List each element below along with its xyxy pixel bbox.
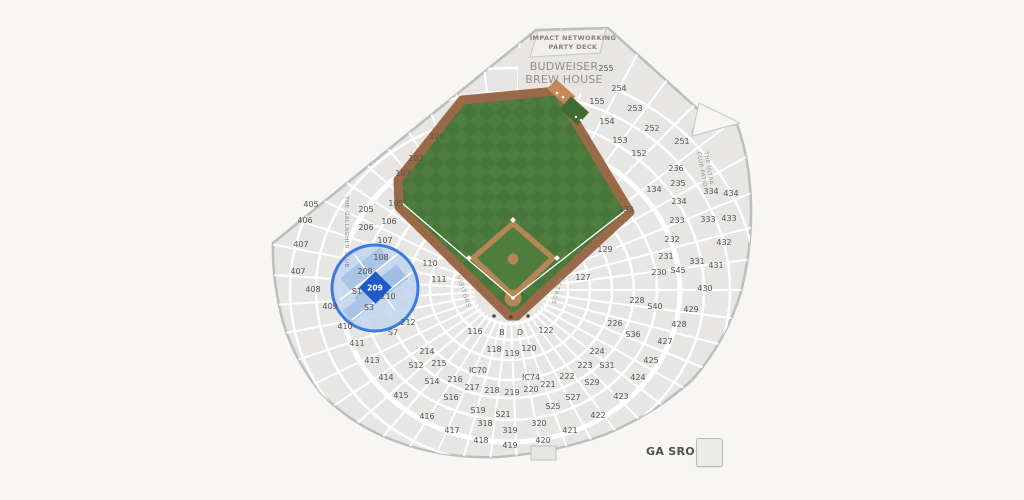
stadium-seat-map: 1001021031051061071081101111161181191201… (0, 0, 1024, 500)
section-331[interactable]: 331 (689, 258, 704, 266)
section-134[interactable]: 134 (646, 186, 661, 194)
backstop-dot-icon (492, 314, 496, 318)
section-230[interactable]: 230 (651, 269, 666, 277)
section-152[interactable]: 152 (631, 150, 646, 158)
section-S36[interactable]: S36 (625, 331, 640, 339)
structure-dot-icon (562, 96, 565, 99)
section-S40[interactable]: S40 (647, 303, 662, 311)
section-428[interactable]: 428 (671, 321, 686, 329)
section-430[interactable]: 430 (697, 285, 712, 293)
section-406[interactable]: 406 (297, 217, 312, 225)
structure-dot-icon (580, 119, 582, 121)
section-252[interactable]: 252 (644, 125, 659, 133)
section-111[interactable]: 111 (431, 276, 446, 284)
section-232[interactable]: 232 (664, 236, 679, 244)
section-S19[interactable]: S19 (470, 407, 485, 415)
section-206[interactable]: 206 (358, 224, 373, 232)
section-416[interactable]: 416 (419, 413, 434, 421)
seat-map-canvas (0, 0, 1024, 500)
section-103[interactable]: 103 (395, 170, 410, 178)
section-D[interactable]: D (517, 329, 523, 337)
section-407[interactable]: 407 (293, 241, 308, 249)
selected-section-label[interactable]: 209 (367, 284, 383, 293)
section-424[interactable]: 424 (630, 374, 645, 382)
section-215[interactable]: 215 (431, 360, 446, 368)
section-425[interactable]: 425 (643, 357, 658, 365)
section-S7[interactable]: S7 (388, 329, 398, 337)
section-231[interactable]: 231 (658, 253, 673, 261)
section-415[interactable]: 415 (393, 392, 408, 400)
section-434[interactable]: 434 (723, 190, 738, 198)
section-127[interactable]: 127 (575, 274, 590, 282)
ga-sro-legend-label: GA SRO (646, 445, 695, 458)
section-236[interactable]: 236 (668, 165, 683, 173)
section-422[interactable]: 422 (590, 412, 605, 420)
section-219[interactable]: 219 (504, 389, 519, 397)
section-318[interactable]: 318 (477, 420, 492, 428)
pitchers-mound (508, 254, 519, 265)
section-216[interactable]: 216 (447, 376, 462, 384)
section-118[interactable]: 118 (486, 346, 501, 354)
section-129[interactable]: 129 (597, 246, 612, 254)
section-S29[interactable]: S29 (584, 379, 599, 387)
section-228[interactable]: 228 (629, 297, 644, 305)
section-217[interactable]: 217 (464, 384, 479, 392)
section-419[interactable]: 419 (502, 442, 517, 450)
section-133[interactable]: 133 (618, 206, 633, 214)
section-205[interactable]: 205 (358, 206, 373, 214)
section-320[interactable]: 320 (531, 420, 546, 428)
section-226[interactable]: 226 (607, 320, 622, 328)
section-107[interactable]: 107 (377, 237, 392, 245)
section-417[interactable]: 417 (444, 427, 459, 435)
section-253[interactable]: 253 (627, 105, 642, 113)
home-plate (511, 296, 515, 300)
backstop-dot-icon (509, 315, 513, 319)
section-100[interactable]: 100 (429, 133, 444, 141)
section-208[interactable]: 208 (357, 268, 372, 276)
section-S3[interactable]: S3 (364, 304, 374, 312)
section-411[interactable]: 411 (349, 340, 364, 348)
section-334[interactable]: 334 (703, 188, 718, 196)
section-S25[interactable]: S25 (545, 403, 560, 411)
section-153[interactable]: 153 (612, 137, 627, 145)
section-212[interactable]: 212 (400, 319, 415, 327)
section-427[interactable]: 427 (657, 338, 672, 346)
section-IC70[interactable]: IC70 (469, 367, 487, 375)
structure-dot-icon (556, 92, 559, 95)
section-218[interactable]: 218 (484, 387, 499, 395)
section-B[interactable]: B (499, 329, 505, 337)
section-410[interactable]: 410 (337, 323, 352, 331)
section-S14[interactable]: S14 (424, 378, 439, 386)
section-S1[interactable]: S1 (352, 288, 362, 296)
section-214[interactable]: 214 (419, 348, 434, 356)
section-407[interactable]: 407 (290, 268, 305, 276)
section-254[interactable]: 254 (611, 85, 626, 93)
section-S16[interactable]: S16 (443, 394, 458, 402)
section-420[interactable]: 420 (535, 437, 550, 445)
section-S12[interactable]: S12 (408, 362, 423, 370)
section-S27[interactable]: S27 (565, 394, 580, 402)
section-319[interactable]: 319 (502, 427, 517, 435)
section-223[interactable]: 223 (577, 362, 592, 370)
section-409[interactable]: 409 (322, 303, 337, 311)
section-408[interactable]: 408 (305, 286, 320, 294)
section-IC74[interactable]: IC74 (522, 374, 540, 382)
party-deck-label: IMPACT NETWORKING PARTY DECK (530, 34, 617, 52)
section-333[interactable]: 333 (700, 216, 715, 224)
backstop-dot-icon (526, 314, 530, 318)
section-222[interactable]: 222 (559, 373, 574, 381)
section-429[interactable]: 429 (683, 306, 698, 314)
section-105[interactable]: 105 (388, 200, 403, 208)
section-S45[interactable]: S45 (670, 267, 685, 275)
section-421[interactable]: 421 (562, 427, 577, 435)
structure-dot-icon (575, 116, 577, 118)
section-418[interactable]: 418 (473, 437, 488, 445)
section-122[interactable]: 122 (538, 327, 553, 335)
section-414[interactable]: 414 (378, 374, 393, 382)
section-251[interactable]: 251 (674, 138, 689, 146)
section-221[interactable]: 221 (540, 381, 555, 389)
section-433[interactable]: 433 (721, 215, 736, 223)
section-233[interactable]: 233 (669, 217, 684, 225)
section-220[interactable]: 220 (523, 386, 538, 394)
bottom-tab (531, 446, 556, 460)
section-119[interactable]: 119 (504, 350, 519, 358)
section-423[interactable]: 423 (613, 393, 628, 401)
ga-sro-legend-swatch (696, 438, 723, 467)
section-154[interactable]: 154 (599, 118, 614, 126)
section-S31[interactable]: S31 (599, 362, 614, 370)
section-431[interactable]: 431 (708, 262, 723, 270)
gallagher-club-label: THE GALLAGHER CLUB (343, 196, 349, 268)
section-110[interactable]: 110 (422, 260, 437, 268)
section-432[interactable]: 432 (716, 239, 731, 247)
section-413[interactable]: 413 (364, 357, 379, 365)
section-235[interactable]: 235 (670, 180, 685, 188)
section-234[interactable]: 234 (671, 198, 686, 206)
brew-house-label: BUDWEISER BREW HOUSE (525, 60, 602, 86)
section-224[interactable]: 224 (589, 348, 604, 356)
section-102[interactable]: 102 (408, 155, 423, 163)
section-210[interactable]: 210 (380, 293, 395, 301)
section-106[interactable]: 106 (381, 218, 396, 226)
section-116[interactable]: 116 (467, 328, 482, 336)
section-405[interactable]: 405 (303, 201, 318, 209)
section-S21[interactable]: S21 (495, 411, 510, 419)
section-155[interactable]: 155 (589, 98, 604, 106)
section-108[interactable]: 108 (373, 254, 388, 262)
section-120[interactable]: 120 (521, 345, 536, 353)
